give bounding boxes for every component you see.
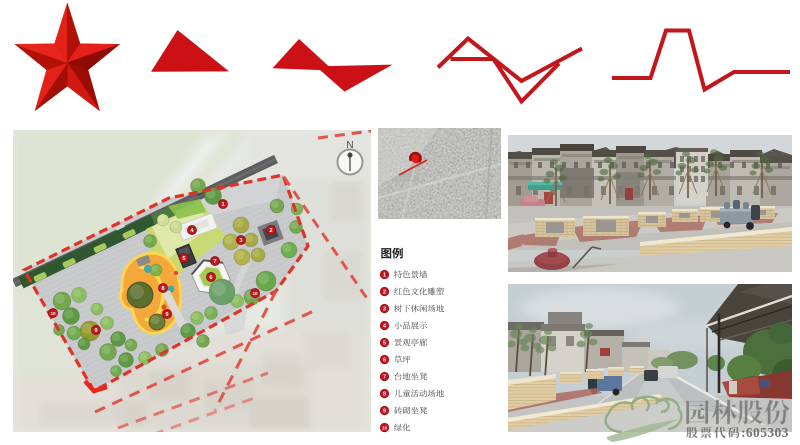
svg-text:8: 8	[383, 391, 386, 397]
svg-text:3: 3	[383, 306, 386, 312]
svg-text:7: 7	[383, 374, 386, 380]
svg-text:4: 4	[383, 323, 386, 329]
svg-text:6: 6	[383, 357, 386, 363]
svg-text:10: 10	[50, 311, 56, 316]
svg-text:10: 10	[382, 425, 387, 430]
svg-text:7: 7	[213, 259, 216, 265]
svg-text:2: 2	[269, 228, 272, 234]
svg-text::605303: :605303	[741, 425, 789, 440]
svg-text:10: 10	[252, 291, 258, 296]
svg-text:9: 9	[383, 408, 386, 414]
svg-text:N: N	[346, 140, 353, 151]
svg-text:5: 5	[383, 340, 386, 346]
svg-text:2: 2	[383, 289, 386, 295]
svg-text:1: 1	[383, 272, 386, 278]
